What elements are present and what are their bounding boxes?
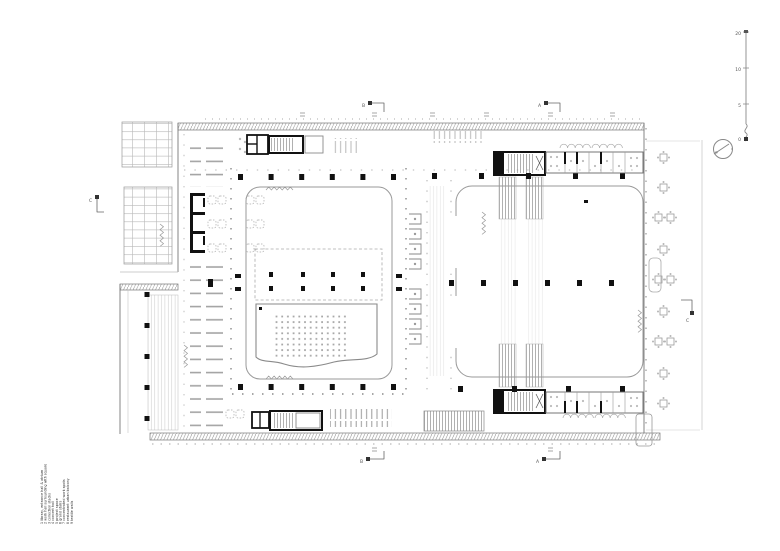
stair-flight xyxy=(499,177,516,219)
stair-void xyxy=(428,186,446,376)
main-hall xyxy=(231,168,406,396)
stair-treads xyxy=(272,413,294,428)
scale-label: 5 xyxy=(738,103,741,109)
canopy-grid xyxy=(122,122,172,167)
terrace-table xyxy=(657,243,670,256)
zigzag-detail xyxy=(482,212,486,234)
section-label: C xyxy=(89,198,92,204)
terrace-table xyxy=(657,181,670,194)
toilets xyxy=(546,392,643,413)
terrace-table xyxy=(652,211,665,224)
planter xyxy=(649,258,661,292)
scale-label: 0 xyxy=(738,137,741,143)
entrance-block xyxy=(239,131,483,154)
shelf-scallops xyxy=(595,414,625,418)
scale-label: 10 xyxy=(735,67,741,73)
shelving xyxy=(190,258,223,430)
study-carrel xyxy=(409,229,421,239)
stair-treads xyxy=(271,138,295,151)
stair-flight xyxy=(499,344,516,387)
reading-table xyxy=(208,196,226,204)
exterior-wall-top xyxy=(178,123,644,130)
stair-flight xyxy=(526,177,543,219)
section-label: A xyxy=(536,459,540,465)
study-carrel xyxy=(409,244,421,254)
stair-treads xyxy=(507,392,533,411)
study-carrel xyxy=(409,259,421,269)
study-carrel xyxy=(409,319,421,329)
reading-table xyxy=(208,220,226,228)
legend-list: 1 library, entrance hall & atrium 2 work… xyxy=(40,456,74,524)
north-arrow-icon xyxy=(714,140,734,159)
ramp xyxy=(148,295,178,430)
terrace-table xyxy=(657,151,670,164)
wide-stair xyxy=(424,411,484,431)
lift-cross xyxy=(536,156,543,170)
terrace-table xyxy=(652,273,665,286)
zigzag-detail xyxy=(638,310,642,332)
lockers xyxy=(333,138,359,153)
terrace-table xyxy=(657,367,670,380)
study-carrel xyxy=(409,214,421,224)
canopy-grid xyxy=(124,187,172,264)
dimension-marks xyxy=(372,448,553,451)
shelving xyxy=(190,140,223,187)
legend-item: 9 textile walls xyxy=(70,456,74,524)
study-carrels xyxy=(409,214,421,344)
auditorium-seating xyxy=(272,314,346,358)
service-core xyxy=(190,193,205,253)
terrace-table xyxy=(664,335,677,348)
reading-table xyxy=(246,196,264,204)
terrace-table xyxy=(652,335,665,348)
terrace-table xyxy=(664,273,677,286)
stair-flight xyxy=(526,344,543,387)
core-bottom xyxy=(494,390,643,413)
floor-plan: B A B A C C 20 10 5 0 xyxy=(0,0,780,551)
section-label: B xyxy=(360,459,363,465)
bike-racks xyxy=(330,409,392,427)
scale-bar: 20 10 5 0 xyxy=(735,30,749,143)
wing-wall xyxy=(120,284,178,290)
study-carrel xyxy=(409,289,421,299)
exterior-wall-bottom xyxy=(150,433,660,440)
shelf-scallops xyxy=(592,144,622,148)
bottom-strip xyxy=(226,409,484,431)
stage-columns xyxy=(269,272,365,291)
lift-cross xyxy=(536,394,543,408)
dimension-marks xyxy=(300,113,615,116)
terrace-table xyxy=(664,211,677,224)
reading-table xyxy=(246,220,264,228)
section-label: C xyxy=(686,318,689,324)
core-top xyxy=(494,152,643,175)
section-label: B xyxy=(362,103,365,109)
legend: 1 library, entrance hall & atrium 2 work… xyxy=(40,457,76,524)
study-carrel xyxy=(409,334,421,344)
scale-label: 20 xyxy=(735,31,741,37)
terrace-table xyxy=(657,305,670,318)
zigzag-detail xyxy=(184,345,188,367)
study-carrel xyxy=(409,304,421,314)
column xyxy=(208,279,213,287)
terrace-table xyxy=(657,397,670,410)
shelf-scallops xyxy=(560,144,590,148)
reading-table xyxy=(208,244,226,252)
reading-table xyxy=(226,410,244,418)
stair-treads xyxy=(507,154,533,173)
terrace xyxy=(636,151,677,446)
shelf-scallops xyxy=(563,414,593,418)
section-label: A xyxy=(538,103,542,109)
book-stacks xyxy=(190,140,264,430)
lockers xyxy=(431,131,483,143)
toilets xyxy=(546,152,643,173)
drawing-sheet: B A B A C C 20 10 5 0 1 xyxy=(0,0,780,551)
